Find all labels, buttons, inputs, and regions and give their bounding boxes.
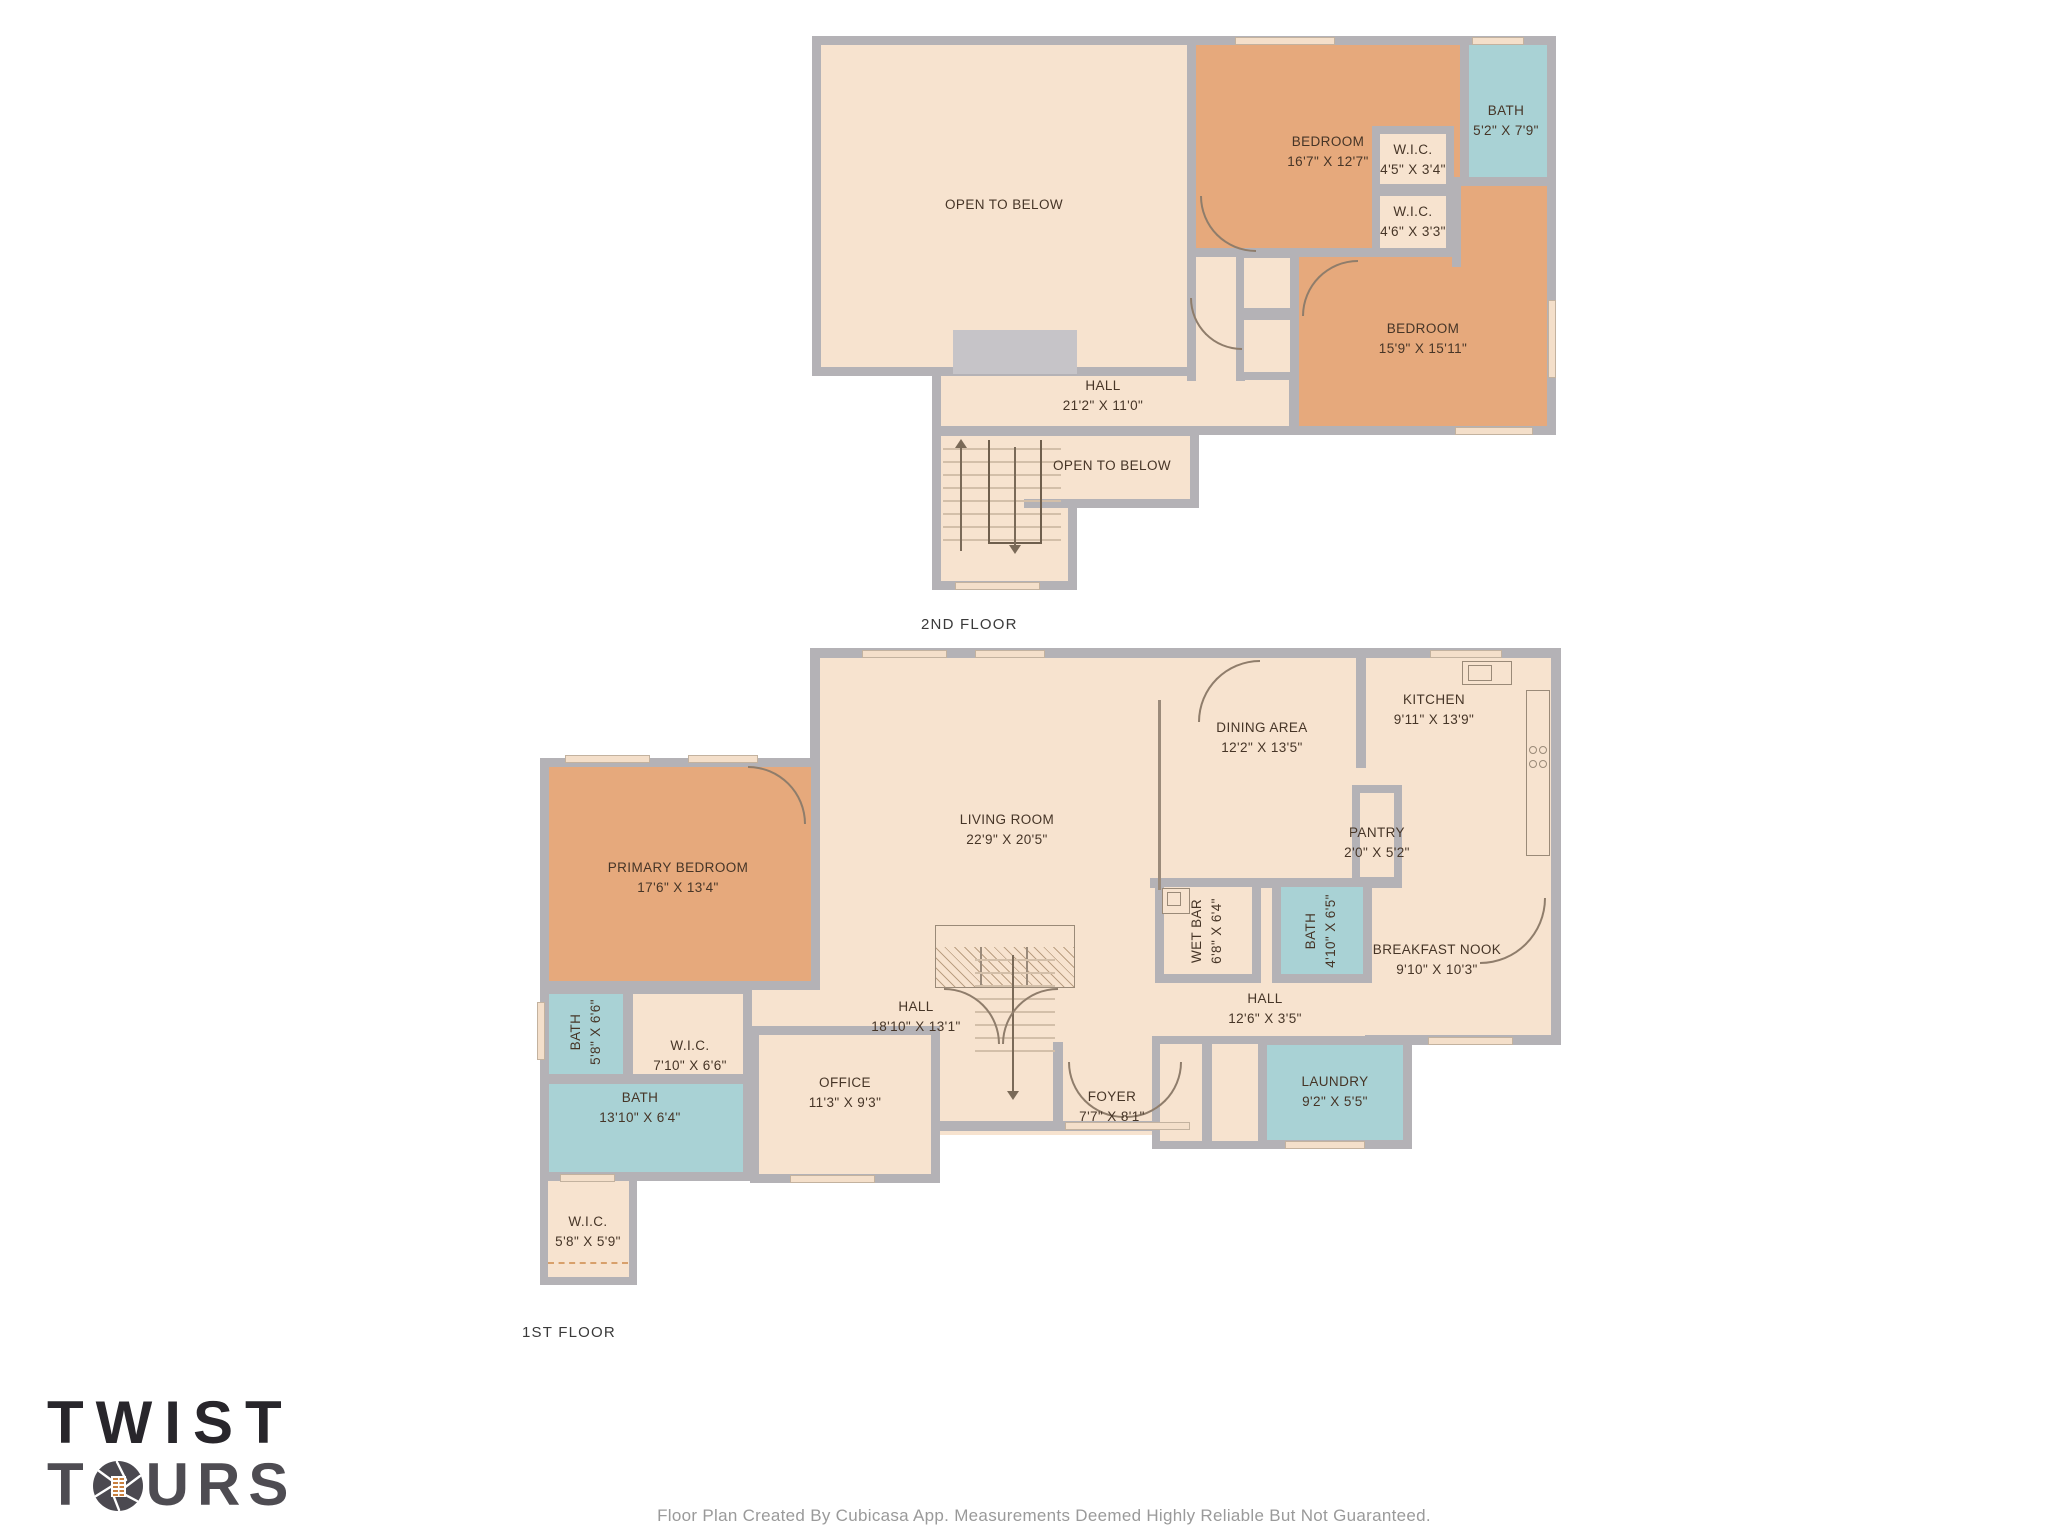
stair-rail-2f-right: [1040, 440, 1042, 544]
room-label-wic-a: W.I.C. 4'5" X 3'4": [1380, 140, 1446, 180]
room-label-wet-bar: WET BAR 6'8" X 6'4": [1187, 898, 1227, 964]
window: [1455, 427, 1533, 435]
chimney-block: [953, 330, 1077, 374]
window: [862, 650, 947, 658]
room-label-primary-bedroom: PRIMARY BEDROOM 17'6" X 13'4": [608, 858, 749, 898]
window: [537, 1002, 545, 1060]
window: [1428, 1037, 1513, 1045]
kitchen-counter: [1526, 690, 1550, 856]
stair-up-arrow-shaft: [960, 447, 962, 551]
room-label-hall-small: HALL 12'6" X 3'5": [1228, 989, 1302, 1029]
room-label-lower-wic: W.I.C. 5'8" X 5'9": [555, 1212, 621, 1252]
room-label-bedroom-back: BEDROOM 15'9" X 15'11": [1379, 319, 1467, 359]
wall-living-left: [810, 648, 820, 763]
wet-bar-sink-basin: [1167, 892, 1181, 906]
wall-bottom-stairs: [930, 1121, 1060, 1131]
second-floor-title: 2ND FLOOR: [921, 616, 1018, 633]
kitchen-sink-basin: [1468, 665, 1492, 681]
stair-down-arrow-shaft-2f: [1014, 447, 1016, 547]
window: [955, 582, 1040, 590]
room-label-primary-wic: W.I.C. 7'10" X 6'6": [653, 1036, 727, 1076]
room-label-bath-2f: BATH 5'2" X 7'9": [1473, 101, 1539, 141]
stair-up-arrow-icon: [955, 439, 967, 448]
first-floor-title: 1ST FLOOR: [522, 1324, 616, 1341]
footer-disclaimer: Floor Plan Created By Cubicasa App. Meas…: [657, 1506, 1431, 1526]
room-label-living-room: LIVING ROOM 22'9" X 20'5": [960, 810, 1054, 850]
room-label-laundry: LAUNDRY 9'2" X 5'5": [1301, 1072, 1368, 1112]
room-label-kitchen: KITCHEN 9'11" X 13'9": [1394, 690, 1475, 730]
window: [1430, 650, 1502, 658]
wall-stairs-foyer: [1053, 1042, 1063, 1131]
room-bedroom-back-arm: [1452, 177, 1556, 267]
lower-wic-dashed-edge: [548, 1262, 628, 1266]
room-label-office: OFFICE 11'3" X 9'3": [809, 1073, 882, 1113]
floor-plan-page: OPEN TO BELOW BEDROOM 16'7" X 12'7" BATH…: [0, 0, 2047, 1535]
living-dining-divider: [1158, 700, 1161, 890]
stove-burner: [1529, 746, 1537, 754]
window: [1285, 1141, 1365, 1149]
room-label-stairwell-open-below: OPEN TO BELOW: [1053, 456, 1171, 476]
logo-text-twist: TWIST: [47, 1392, 296, 1454]
stove-burner: [1529, 760, 1537, 768]
room-label-bedroom-front: BEDROOM 16'7" X 12'7": [1287, 132, 1369, 172]
window: [1235, 37, 1335, 45]
room-label-open-to-below: OPEN TO BELOW: [945, 195, 1063, 215]
logo-shutter-icon: [92, 1460, 144, 1512]
stove-burner: [1539, 760, 1547, 768]
stove-burner: [1539, 746, 1547, 754]
wall-dining-kitchen: [1356, 648, 1366, 768]
room-label-breakfast-nook: BREAKFAST NOOK 9'10" X 10'3": [1373, 940, 1501, 980]
room-label-hall-bath: BATH 4'10" X 6'5": [1301, 894, 1341, 968]
window: [560, 1174, 615, 1182]
room-label-wic-b: W.I.C. 4'6" X 3'3": [1380, 202, 1446, 242]
stair-down-arrow-icon-2f: [1009, 545, 1021, 554]
room-label-hall-main: HALL 18'10" X 13'1": [871, 997, 960, 1037]
room-label-main-bath: BATH 13'10" X 6'4": [599, 1088, 681, 1128]
logo-text-tours: T: [47, 1454, 296, 1516]
floor-area-main: [815, 653, 1556, 888]
room-label-foyer: FOYER 7'7" X 8'1": [1079, 1087, 1145, 1127]
window: [790, 1175, 875, 1183]
stair-rail-2f-left: [988, 440, 990, 544]
room-label-pantry: PANTRY 2'0" X 5'2": [1344, 823, 1410, 863]
wall-right: [1551, 648, 1561, 1045]
window: [565, 755, 650, 763]
room-label-hall-2f: HALL 21'2" X 11'0": [1063, 376, 1144, 416]
hall-closet-b: [1236, 312, 1298, 380]
window: [1472, 37, 1524, 45]
hall-closet-a: [1236, 250, 1298, 316]
window: [688, 755, 758, 763]
foyer-closet-b: [1204, 1036, 1266, 1149]
room-label-dining-area: DINING AREA 12'2" X 13'5": [1216, 718, 1307, 758]
window: [975, 650, 1045, 658]
logo-letter-t: T: [47, 1454, 92, 1516]
window: [1548, 300, 1556, 378]
logo-letters-urs: URS: [146, 1454, 297, 1516]
stair-down-arrow-icon-1f: [1007, 1091, 1019, 1100]
logo-building-glyph: [111, 1476, 126, 1497]
twist-tours-logo: TWIST T: [47, 1392, 296, 1516]
room-label-primary-bath: BATH 5'8" X 6'6": [566, 999, 606, 1065]
